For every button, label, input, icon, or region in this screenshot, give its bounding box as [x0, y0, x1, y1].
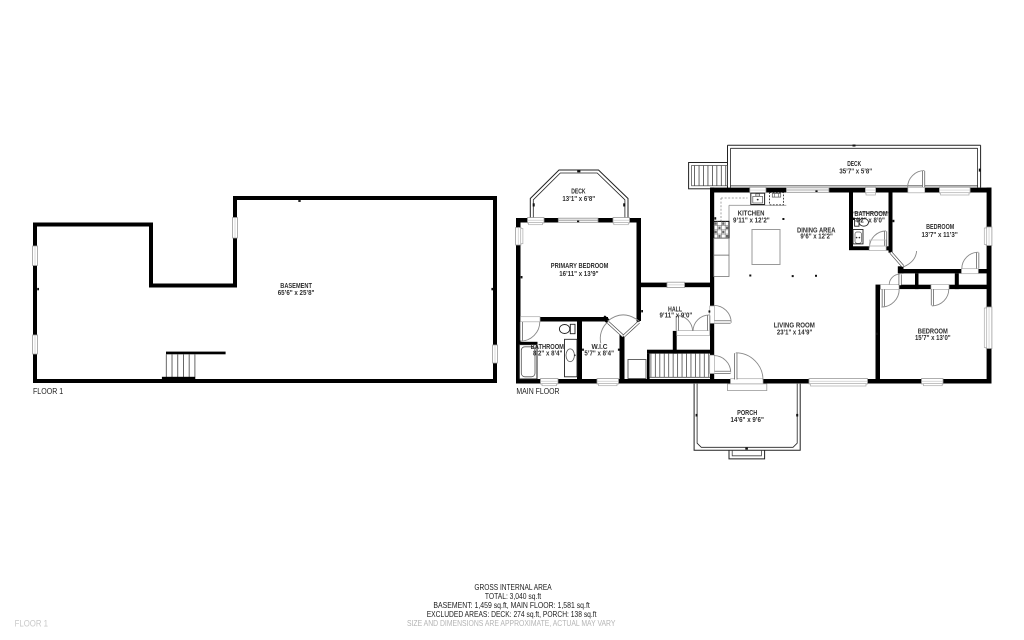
svg-text:EXCLUDED AREAS: DECK: 274 sq.f: EXCLUDED AREAS: DECK: 274 sq.ft, PORCH: … — [427, 610, 597, 619]
svg-text:DECK: DECK — [571, 189, 585, 196]
svg-text:TOTAL: 3,040 sq.ft: TOTAL: 3,040 sq.ft — [485, 592, 542, 601]
svg-text:MAIN FLOOR: MAIN FLOOR — [516, 386, 559, 396]
svg-text:SIZE AND DIMENSIONS ARE APPROX: SIZE AND DIMENSIONS ARE APPROXIMATE, ACT… — [407, 619, 616, 628]
svg-text:35’7" x 5’8": 35’7" x 5’8" — [839, 168, 872, 175]
svg-text:9’6" x 12’2": 9’6" x 12’2" — [800, 234, 833, 241]
svg-text:FLOOR 1: FLOOR 1 — [33, 386, 63, 396]
svg-text:PRIMARY BEDROOM: PRIMARY BEDROOM — [551, 263, 609, 270]
svg-text:9’11" x 9’0": 9’11" x 9’0" — [660, 313, 693, 320]
svg-text:4’2" x 8’0": 4’2" x 8’0" — [855, 218, 885, 225]
svg-text:BEDROOM: BEDROOM — [926, 224, 954, 231]
svg-text:16’11" x 13’9": 16’11" x 13’9" — [559, 271, 598, 278]
svg-text:14’6" x 9’6": 14’6" x 9’6" — [731, 417, 764, 424]
svg-text:KITCHEN: KITCHEN — [738, 211, 765, 218]
svg-text:15’7" x 13’0": 15’7" x 13’0" — [915, 335, 951, 342]
svg-text:13’7" x 11’3": 13’7" x 11’3" — [921, 232, 957, 239]
svg-text:FLOOR 1: FLOOR 1 — [15, 619, 48, 630]
svg-text:LIVING ROOM: LIVING ROOM — [774, 323, 815, 330]
svg-text:65’6" x 25’8": 65’6" x 25’8" — [278, 290, 315, 297]
svg-text:9’11" x 12’2": 9’11" x 12’2" — [733, 218, 770, 225]
svg-text:8’2" x 8’4": 8’2" x 8’4" — [533, 351, 563, 358]
svg-text:5’7" x 8’4": 5’7" x 8’4" — [584, 350, 614, 357]
svg-text:DECK: DECK — [847, 161, 861, 168]
svg-text:BASEMENT: 1,459 sq.ft, MAIN FL: BASEMENT: 1,459 sq.ft, MAIN FLOOR: 1,581… — [433, 601, 590, 610]
svg-text:BASEMENT: BASEMENT — [280, 283, 312, 290]
svg-text:23’1" x 14’9": 23’1" x 14’9" — [777, 330, 812, 337]
svg-text:13’1" x 6’8": 13’1" x 6’8" — [562, 196, 595, 203]
svg-text:GROSS INTERNAL AREA: GROSS INTERNAL AREA — [474, 583, 552, 592]
